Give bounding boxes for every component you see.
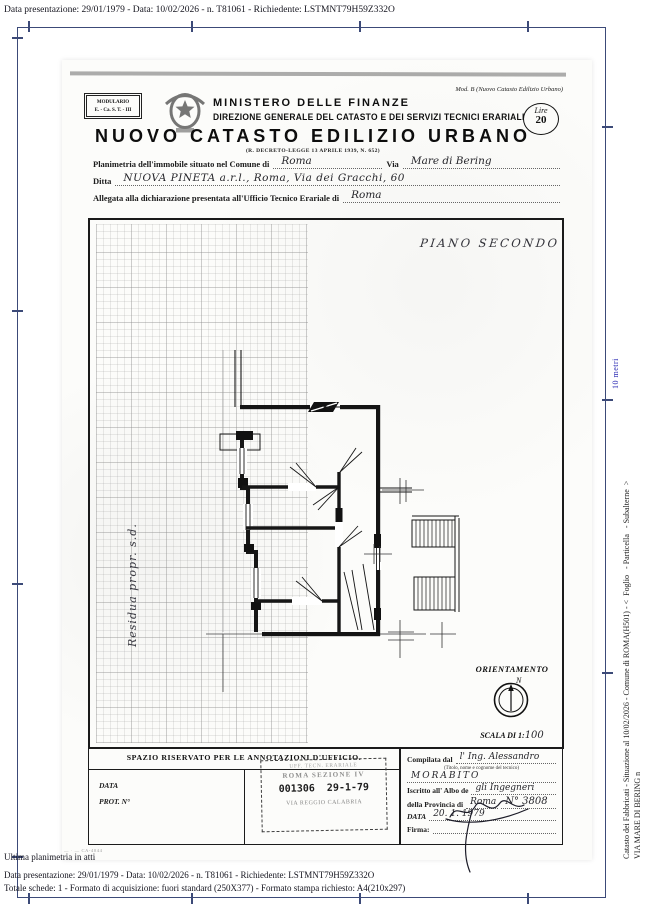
ruler-tick	[602, 126, 613, 128]
stamp-number: 001306 29-1-79	[262, 782, 386, 796]
side-reference-line1: Catasto dei Fabbricati - Situazione al 1…	[621, 389, 632, 859]
ruler-tick	[28, 893, 30, 904]
top-status-text: Data presentazione: 29/01/1979 - Data: 1…	[4, 5, 395, 15]
compiler-row-name: Compilata dal l' Ing. Alessandro	[407, 753, 556, 764]
iscritto-label: Iscritto all' Albo de	[407, 786, 468, 795]
ruler-tick	[602, 672, 613, 674]
field-comune-label: Planimetria dell'immobile situato nel Co…	[93, 159, 269, 169]
modulario-line1: MODULARIO	[87, 99, 139, 107]
compiler-row-surname: MORABITO	[407, 772, 556, 783]
compass-icon: N	[489, 674, 535, 720]
ruler-tick	[527, 893, 529, 904]
ministry-line2: DIREZIONE GENERALE DEL CATASTO E DEI SER…	[213, 112, 525, 122]
stamp-line2: ROMA SEZIONE IV	[262, 770, 386, 781]
ruler-tick	[191, 21, 193, 32]
law-reference: (R. DECRETO-LEGGE 13 APRILE 1939, N. 652…	[88, 148, 538, 154]
ruler-tick	[527, 21, 529, 32]
ruler-tick	[12, 310, 23, 312]
mod-b-note: Mod. B (Nuovo Catasto Edilizio Urbano)	[405, 86, 563, 93]
firma-label: Firma:	[407, 825, 430, 834]
orientation-block: ORIENTAMENTO N SCALA DI 1:100	[470, 664, 554, 743]
form-title: NUOVO CATASTO EDILIZIO URBANO	[88, 126, 538, 147]
compiler-row-albo: Iscritto all' Albo de gli Ingegneri	[407, 784, 556, 795]
stamp-line4: VIA REGGIO CALABRIA	[262, 799, 386, 808]
field-via-label: Via	[386, 159, 398, 169]
stamp-line1: UFF. TECN. ERARIALE	[261, 762, 385, 771]
side-reference-line2: VIA MARE DI BERING n	[632, 389, 643, 859]
side-reference-text: Catasto dei Fabbricati - Situazione al 1…	[621, 389, 645, 859]
office-prot-label: PROT. N°	[99, 797, 130, 806]
iscritto-value: gli Ingegneri	[471, 784, 556, 795]
lire-value: 20	[524, 115, 558, 126]
orientation-title: ORIENTAMENTO	[470, 664, 554, 674]
divider	[244, 769, 245, 844]
scale-line: SCALA DI 1:100	[470, 725, 554, 743]
ruler-tick	[602, 399, 613, 401]
field-comune-value: Roma	[273, 156, 382, 169]
modulario-box: MODULARIO E. - Ca. S. T. - III	[86, 95, 140, 117]
field-ufficio-label: Allegata alla dichiarazione presentata a…	[93, 193, 339, 203]
field-ditta-value: NUOVA PINETA a.r.l., Roma, Via dei Gracc…	[115, 173, 560, 186]
compiler-surname: MORABITO	[407, 772, 556, 783]
document-viewer: Data presentazione: 29/01/1979 - Data: 1…	[0, 0, 650, 911]
ministry-line1: MINISTERO DELLE FINANZE	[213, 97, 410, 109]
ruler-tick	[359, 21, 361, 32]
field-row-ufficio: Allegata alla dichiarazione presentata a…	[93, 190, 560, 203]
scale-value: 100	[525, 730, 544, 741]
footer-note: Ultima planimetria in atti	[4, 852, 95, 862]
footer-line1: Data presentazione: 29/01/1979 - Data: 1…	[4, 870, 374, 880]
field-row-comune: Planimetria dell'immobile situato nel Co…	[93, 156, 560, 169]
ruler-tick	[191, 893, 193, 904]
office-annotations-box: SPAZIO RISERVATO PER LE ANNOTAZIONI D'UF…	[88, 748, 400, 845]
scale-label: SCALA DI 1:	[480, 731, 524, 740]
ruler-tick	[28, 21, 30, 32]
modulario-line2: E. - Ca. S. T. - III	[87, 107, 139, 115]
ruler-tick	[12, 583, 23, 585]
field-via-value: Mare di Bering	[403, 156, 560, 169]
ruler-tick	[359, 893, 361, 904]
office-stamp: UFF. TECN. ERARIALE ROMA SEZIONE IV 0013…	[260, 758, 387, 833]
signature	[432, 795, 582, 880]
office-data-label: DATA	[99, 781, 118, 790]
plan-area: PIANO SECONDO Residua propr. s.d.	[88, 218, 564, 749]
field-row-ditta: Ditta NUOVA PINETA a.r.l., Roma, Via dei…	[93, 173, 560, 186]
scale-ruler-label: 10 metri	[611, 315, 623, 389]
compilata-label: Compilata dal	[407, 755, 453, 764]
compiler-data-label: DATA	[407, 812, 426, 821]
compilata-value: l' Ing. Alessandro	[456, 753, 556, 764]
field-ditta-label: Ditta	[93, 176, 111, 186]
ruler-tick	[12, 37, 23, 39]
footer-line2: Totale schede: 1 - Formato di acquisizio…	[4, 883, 405, 893]
compass-north-label: N	[515, 676, 522, 685]
compiler-caption: (Titolo, nome e cognome del tecnico)	[407, 766, 556, 771]
field-ufficio-value: Roma	[343, 190, 560, 203]
